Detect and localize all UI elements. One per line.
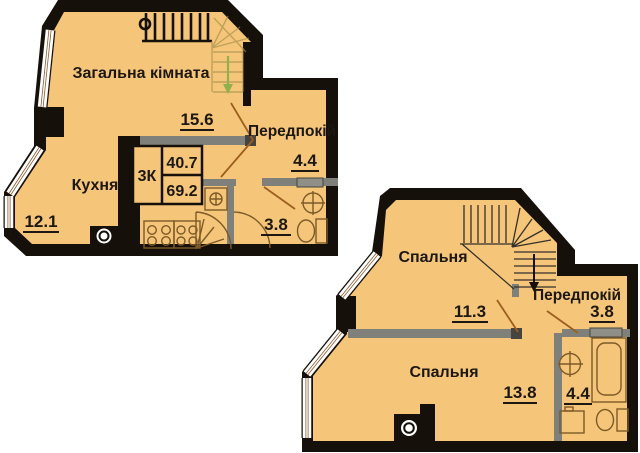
partition-bath-right	[322, 178, 338, 186]
room-label-bedroom2: Спальня	[409, 364, 478, 381]
partition-bath-left	[262, 178, 298, 186]
rooms-code: 3К	[138, 168, 157, 185]
apartment-info-box: 3К 40.7 69.2	[133, 146, 202, 204]
stair-hall-wall	[243, 42, 251, 106]
total-area-value: 69.2	[166, 183, 197, 200]
partition-bath-left	[554, 333, 562, 441]
bathroom-door-leaf	[297, 178, 323, 187]
floorplan-svg: 3К 40.7 69.2 Загальна кімната 15.6 Перед…	[0, 0, 640, 453]
wall-jog	[340, 296, 356, 332]
room-area-bedroom1: 11.3	[454, 302, 486, 321]
room-area-kitchen: 12.1	[24, 212, 57, 231]
bathroom-door-leaf	[590, 328, 622, 337]
partition-stub	[512, 284, 519, 297]
room-label-hall: Передпокій	[248, 123, 336, 140]
room-area-bedroom2: 13.8	[503, 383, 536, 402]
wall-jog	[44, 107, 64, 137]
living-area-value: 40.7	[166, 155, 197, 172]
partition-bedroom1	[348, 329, 512, 338]
plan-lower-level: Спальня 11.3 Передпокій 3.8 Спальня 13.8…	[302, 188, 638, 452]
room-label-bedroom1: Спальня	[398, 249, 467, 266]
floorplan-image: 3К 40.7 69.2 Загальна кімната 15.6 Перед…	[0, 0, 640, 453]
room-area-living: 15.6	[180, 110, 213, 129]
plan-upper-level: 3К 40.7 69.2 Загальна кімната 15.6 Перед…	[4, 0, 338, 256]
room-area-hall: 4.4	[293, 151, 317, 170]
room-area-bathroom: 4.4	[566, 384, 590, 403]
room-area-bathroom: 3.8	[264, 215, 288, 234]
partition-bath-top-a	[562, 329, 590, 337]
room-label-living: Загальна кімната	[72, 65, 209, 82]
vent-shaft-stub	[420, 404, 435, 442]
room-area-hall: 3.8	[590, 302, 614, 321]
room-label-kitchen: Кухня	[72, 177, 119, 194]
partition-living-hall	[128, 136, 246, 145]
